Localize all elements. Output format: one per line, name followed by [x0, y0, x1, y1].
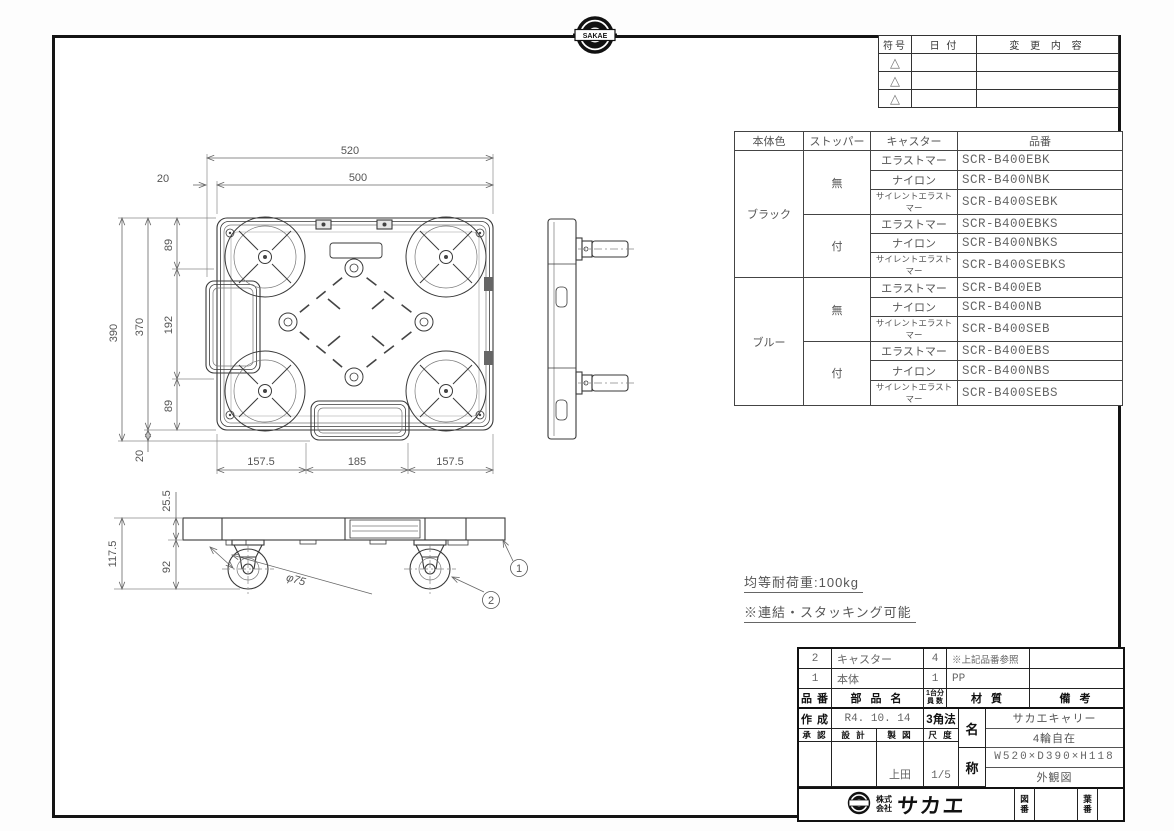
header-qty-col: 1台分 員 数	[924, 689, 947, 709]
created-date: R4. 10. 14	[832, 709, 924, 729]
dim-92: 92	[161, 561, 173, 573]
sheet-no-value	[1098, 787, 1123, 820]
table-row: ブラック 無 エラストマー SCR-B400EBK	[735, 151, 1123, 170]
part-number: SCR-B400NBKS	[958, 234, 1123, 253]
product-name-3: W520×D390×H118	[986, 748, 1123, 768]
created-label: 作 成	[799, 709, 832, 729]
title-block: 2 キャスター 4 ※上記品番参照 1 本体 1 PP 品 番 部 品 名 1台…	[797, 647, 1125, 822]
product-name-4: 外観図	[986, 768, 1123, 788]
part-material: ※上記品番参照	[947, 649, 1030, 669]
caster-type: エラストマー	[871, 278, 958, 297]
table-row: ブルー 無 エラストマー SCR-B400EB	[735, 278, 1123, 297]
caster-type: エラストマー	[871, 151, 958, 170]
dimension-labels: 520 500 20 390 370 89 192 89 20 157.5 18…	[107, 145, 522, 607]
note-stacking: ※連結・スタッキング可能	[744, 600, 916, 623]
sheet-no-label: 葉 番	[1078, 787, 1098, 820]
header-body-color: 本体色	[735, 132, 804, 151]
revision-row: △	[879, 54, 1119, 72]
caster-type: サイレントエラストマー	[871, 253, 958, 278]
product-table: 本体色 ストッパー キャスター 品番 ブラック 無 エラストマー SCR-B40…	[734, 131, 1123, 406]
part-name: キャスター	[832, 649, 924, 669]
product-name-2: 4輪自在	[986, 729, 1123, 749]
sheet-no-line2: 番	[1083, 805, 1092, 814]
dim-caster-dia: φ75	[285, 572, 308, 589]
design-label: 設 計	[832, 729, 877, 742]
extension-lines	[114, 154, 493, 589]
note-load-capacity: 均等耐荷重:100kg	[744, 570, 863, 593]
dim-89-bottom: 89	[163, 400, 175, 412]
header-part-name-col: 部 品 名	[832, 689, 924, 709]
stopper-with: 付	[804, 214, 871, 278]
header-material-col: 材 質	[947, 689, 1030, 709]
caster-type: サイレントエラストマー	[871, 317, 958, 342]
part-item-no: 1	[799, 669, 832, 689]
approve-label: 承 認	[799, 729, 832, 742]
company-logo-icon	[847, 791, 871, 818]
dim-117-5: 117.5	[107, 541, 119, 568]
draft-label: 製 図	[877, 729, 924, 742]
name-label-top: 名	[959, 709, 986, 748]
product-name-1: サカエキャリー	[986, 709, 1123, 729]
part-number: SCR-B400SEBKS	[958, 253, 1123, 278]
cad-drawing: 520 500 20 390 370 89 192 89 20 157.5 18…	[100, 140, 660, 620]
part-number: SCR-B400NBK	[958, 170, 1123, 189]
caster-type: エラストマー	[871, 342, 958, 361]
body-color-black: ブラック	[735, 151, 804, 278]
revision-triangle-icon: △	[890, 91, 900, 106]
front-view	[183, 518, 505, 594]
front-caster-left	[222, 540, 274, 594]
dim-25-5: 25.5	[161, 490, 173, 511]
scale-label: 尺 度	[924, 729, 959, 742]
company-name: サカエ	[895, 790, 967, 820]
dim-192: 192	[163, 316, 175, 334]
scale-value: 1/5	[924, 742, 959, 787]
draft-value: 上田	[877, 742, 924, 787]
dimension-lines	[122, 158, 493, 594]
dim-500: 500	[349, 172, 367, 184]
body-color-blue: ブルー	[735, 278, 804, 405]
caster-type: ナイロン	[871, 234, 958, 253]
plan-caster-mounts	[225, 217, 486, 431]
caster-type: サイレントエラストマー	[871, 189, 958, 214]
company-logo-cell: 株式 会社 サカエ	[799, 787, 1015, 820]
dim-89-top: 89	[163, 239, 175, 251]
revision-triangle-icon: △	[890, 55, 900, 70]
caster-type: ナイロン	[871, 361, 958, 380]
caster-type: ナイロン	[871, 297, 958, 316]
revision-col-content: 変 更 内 容	[977, 36, 1119, 54]
revision-col-date: 日 付	[912, 36, 977, 54]
caster-type: ナイロン	[871, 170, 958, 189]
product-table-header: 本体色 ストッパー キャスター 品番	[735, 132, 1123, 151]
caster-type: サイレントエラストマー	[871, 380, 958, 405]
front-caster-right	[404, 540, 456, 594]
revision-triangle-icon: △	[890, 73, 900, 88]
dim-20-left: 20	[157, 173, 169, 185]
projection-method: 3角法	[924, 709, 959, 729]
part-qty: 4	[924, 649, 947, 669]
dim-20-bottom: 20	[134, 450, 146, 462]
part-number: SCR-B400SEB	[958, 317, 1123, 342]
part-number: SCR-B400NB	[958, 297, 1123, 316]
dim-520: 520	[341, 145, 359, 157]
part-number: SCR-B400EBK	[958, 151, 1123, 170]
balloon-2-label: 2	[488, 595, 494, 607]
revision-row: △	[879, 90, 1119, 108]
drawing-no-value	[1035, 787, 1078, 820]
balloon-1-label: 1	[516, 563, 522, 575]
header-stopper: ストッパー	[804, 132, 871, 151]
caster-type: エラストマー	[871, 214, 958, 233]
drawing-notes: 均等耐荷重:100kg ※連結・スタッキング可能	[744, 570, 916, 630]
stopper-none: 無	[804, 278, 871, 342]
part-number: SCR-B400NBS	[958, 361, 1123, 380]
part-remarks	[1030, 649, 1123, 669]
revision-table: 符号 日 付 変 更 内 容 △ △ △	[878, 35, 1119, 108]
dim-157-5-left: 157.5	[247, 456, 275, 468]
dim-370: 370	[134, 318, 146, 336]
part-number: SCR-B400SEBS	[958, 380, 1123, 405]
revision-row: △	[879, 72, 1119, 90]
qty-header-line1: 1台分	[926, 690, 944, 698]
part-remarks	[1030, 669, 1123, 689]
part-item-no: 2	[799, 649, 832, 669]
part-qty: 1	[924, 669, 947, 689]
part-material: PP	[947, 669, 1030, 689]
stopper-none: 無	[804, 151, 871, 215]
revision-col-symbol: 符号	[879, 36, 912, 54]
name-label-bottom: 称	[959, 748, 986, 787]
drawing-no-label: 図 番	[1015, 787, 1035, 820]
plan-rib-pattern	[300, 278, 412, 367]
part-number: SCR-B400EBKS	[958, 214, 1123, 233]
part-number: SCR-B400EB	[958, 278, 1123, 297]
stopper-with: 付	[804, 342, 871, 406]
dim-185: 185	[348, 456, 366, 468]
side-view	[548, 219, 634, 439]
header-part-no: 品番	[958, 132, 1123, 151]
sakae-logo-text: SAKAE	[583, 33, 608, 40]
part-number: SCR-B400EBS	[958, 342, 1123, 361]
header-part-no-col: 品 番	[799, 689, 832, 709]
part-name: 本体	[832, 669, 924, 689]
dim-390: 390	[108, 324, 120, 342]
design-value	[832, 742, 877, 787]
qty-header-line2: 員 数	[927, 698, 943, 706]
dim-157-5-right: 157.5	[436, 456, 464, 468]
header-caster: キャスター	[871, 132, 958, 151]
approve-value	[799, 742, 832, 787]
company-prefix-line2: 会社	[876, 804, 892, 813]
header-remarks-col: 備 考	[1030, 689, 1123, 709]
drawing-no-line2: 番	[1020, 805, 1029, 814]
part-number: SCR-B400SEBK	[958, 189, 1123, 214]
drawing-sheet: { "page": { "top_logo_text": "SAKAE" }, …	[0, 0, 1174, 831]
sakae-logo-icon: SAKAE	[573, 13, 617, 57]
